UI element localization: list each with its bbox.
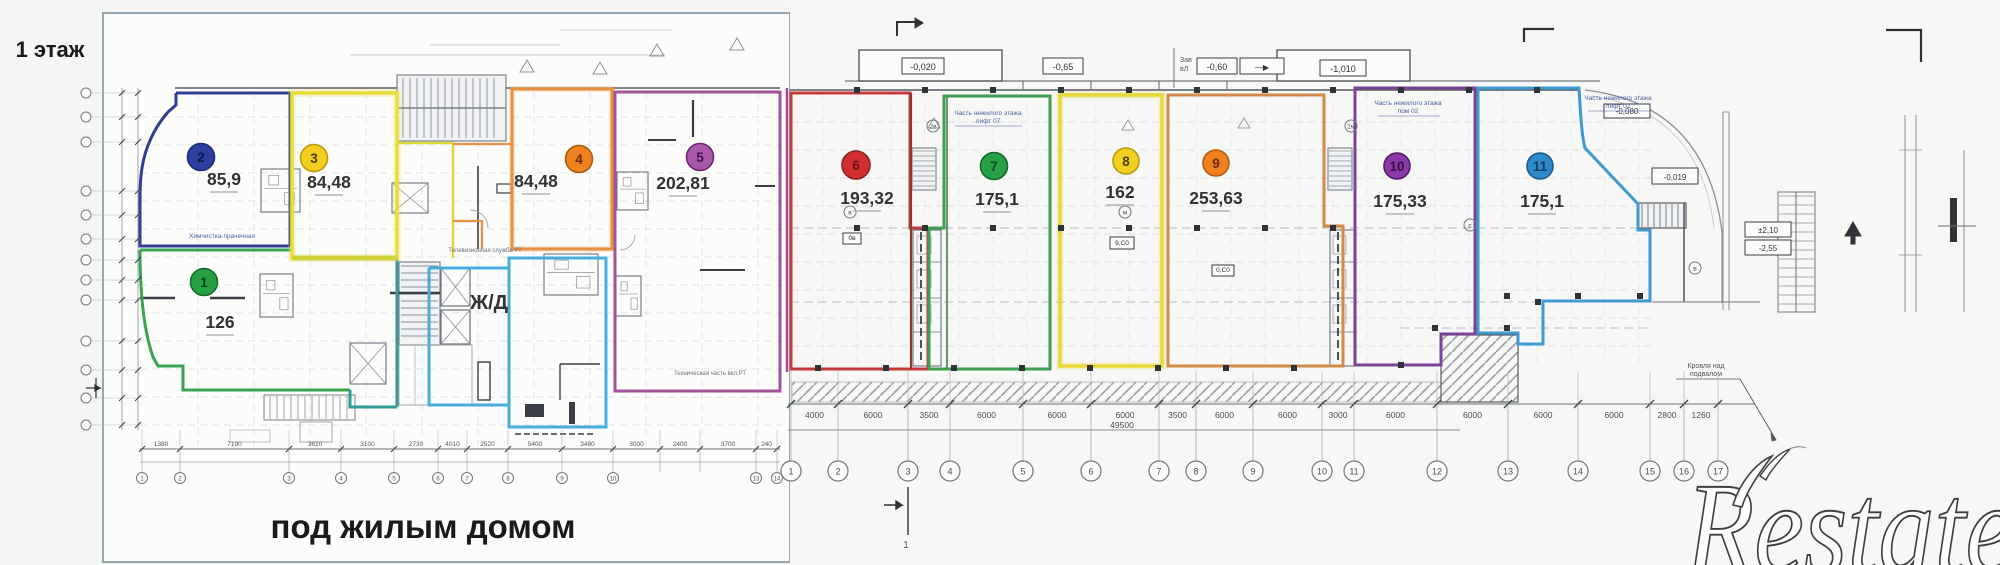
svg-text:6000: 6000 [1215, 410, 1234, 420]
svg-text:пом 02: пом 02 [1398, 108, 1419, 115]
svg-text:3: 3 [905, 467, 910, 477]
svg-text:9,С0: 9,С0 [1115, 240, 1129, 247]
svg-text:2520: 2520 [480, 441, 495, 448]
svg-text:6000: 6000 [1463, 410, 1482, 420]
svg-text:4: 4 [575, 152, 583, 167]
svg-text:202,81: 202,81 [656, 173, 710, 193]
svg-text:2: 2 [835, 467, 840, 477]
svg-text:0в: 0в [848, 235, 856, 242]
svg-text:8: 8 [1193, 467, 1198, 477]
svg-text:6000: 6000 [977, 410, 996, 420]
svg-text:126: 126 [205, 312, 234, 332]
svg-text:14: 14 [774, 477, 781, 483]
svg-text:8: 8 [1122, 154, 1130, 169]
svg-text:3000: 3000 [1329, 410, 1348, 420]
svg-text:6000: 6000 [1605, 410, 1624, 420]
svg-text:4: 4 [947, 467, 952, 477]
svg-text:6000: 6000 [1048, 410, 1067, 420]
svg-text:6000: 6000 [1278, 410, 1297, 420]
svg-text:12: 12 [1432, 467, 1442, 477]
svg-text:3100: 3100 [360, 441, 375, 448]
svg-text:9: 9 [1212, 156, 1220, 171]
svg-text:7: 7 [990, 159, 998, 174]
svg-text:10: 10 [1389, 159, 1404, 174]
svg-text:5400: 5400 [528, 441, 543, 448]
svg-text:-0,020: -0,020 [910, 62, 936, 72]
svg-text:10: 10 [610, 477, 617, 483]
svg-text:Телевизионная служба РТ: Телевизионная служба РТ [448, 248, 522, 254]
svg-text:Часть нежилого этажа: Часть нежилого этажа [1374, 100, 1442, 107]
svg-text:в: в [848, 210, 852, 217]
svg-text:-0,65: -0,65 [1053, 62, 1074, 72]
svg-text:6000: 6000 [1386, 410, 1405, 420]
svg-text:2в: 2в [929, 124, 937, 131]
svg-text:—▶: —▶ [1255, 63, 1270, 72]
svg-text:6: 6 [852, 158, 860, 173]
svg-text:Техническая часть вкл.РТ: Техническая часть вкл.РТ [674, 371, 746, 377]
svg-text:3480: 3480 [580, 441, 595, 448]
svg-text:85,9: 85,9 [207, 169, 241, 189]
svg-text:-0,019: -0,019 [1664, 173, 1687, 182]
svg-text:1: 1 [903, 540, 909, 551]
svg-text:вЛ: вЛ [1180, 66, 1189, 73]
svg-text:3000: 3000 [629, 441, 644, 448]
svg-text:6000: 6000 [864, 410, 883, 420]
svg-text:±2,10: ±2,10 [1758, 226, 1779, 235]
svg-text:84,48: 84,48 [514, 171, 558, 191]
svg-text:193,32: 193,32 [840, 188, 894, 208]
svg-text:7: 7 [1156, 467, 1161, 477]
svg-text:14: 14 [1573, 467, 1583, 477]
svg-text:1 этаж: 1 этаж [16, 37, 85, 62]
svg-text:5: 5 [1020, 467, 1025, 477]
svg-text:Ж/Д: Ж/Д [469, 292, 508, 314]
svg-text:лифт 02: лифт 02 [1606, 103, 1631, 110]
svg-text:4010: 4010 [445, 441, 460, 448]
svg-text:Кровля над: Кровля над [1687, 363, 1724, 370]
svg-text:9: 9 [1250, 467, 1255, 477]
svg-text:2800: 2800 [1658, 410, 1677, 420]
svg-text:подвалом: подвалом [1690, 371, 1722, 378]
svg-text:Зав: Зав [1180, 57, 1192, 64]
svg-text:Restate: Restate [1685, 457, 2000, 565]
svg-text:2400: 2400 [673, 441, 688, 448]
svg-text:10: 10 [1317, 467, 1327, 477]
svg-text:2м: 2м [1347, 124, 1356, 131]
svg-text:13: 13 [753, 477, 760, 483]
svg-text:1: 1 [788, 467, 793, 477]
svg-text:3500: 3500 [920, 410, 939, 420]
svg-text:Часть нежилого этажа: Часть нежилого этажа [1584, 95, 1652, 102]
svg-text:6000: 6000 [1534, 410, 1553, 420]
svg-text:-0,60: -0,60 [1207, 62, 1228, 72]
svg-text:6: 6 [1088, 467, 1093, 477]
svg-text:0,С0: 0,С0 [1216, 267, 1230, 274]
svg-text:3: 3 [310, 151, 318, 166]
svg-text:лифт 07: лифт 07 [976, 118, 1001, 125]
svg-text:3700: 3700 [721, 441, 736, 448]
svg-text:11: 11 [1349, 467, 1358, 477]
svg-text:под жилым домом: под жилым домом [271, 508, 576, 545]
svg-text:5: 5 [696, 150, 704, 165]
svg-text:240: 240 [761, 441, 772, 448]
svg-text:6000: 6000 [1116, 410, 1135, 420]
svg-text:7190: 7190 [227, 441, 242, 448]
svg-text:-1,010: -1,010 [1330, 64, 1356, 74]
svg-text:175,1: 175,1 [1520, 191, 1564, 211]
svg-text:4000: 4000 [805, 410, 824, 420]
svg-text:11: 11 [1533, 159, 1548, 174]
svg-text:49500: 49500 [1110, 420, 1134, 430]
svg-text:162: 162 [1105, 182, 1134, 202]
svg-text:3500: 3500 [1168, 410, 1187, 420]
svg-text:175,33: 175,33 [1373, 191, 1427, 211]
svg-text:Химчистка-прачечная: Химчистка-прачечная [189, 233, 255, 240]
svg-text:Часть нежилого этажа: Часть нежилого этажа [954, 110, 1022, 117]
svg-text:в: в [1693, 266, 1697, 273]
svg-text:84,48: 84,48 [307, 172, 351, 192]
svg-text:1: 1 [200, 275, 208, 290]
svg-text:м: м [1123, 210, 1128, 217]
svg-text:2: 2 [197, 150, 205, 165]
svg-text:175,1: 175,1 [975, 189, 1019, 209]
svg-text:1380: 1380 [154, 441, 169, 448]
svg-text:2730: 2730 [409, 441, 424, 448]
svg-text:253,63: 253,63 [1189, 188, 1243, 208]
svg-text:3610: 3610 [308, 441, 323, 448]
svg-text:15: 15 [1645, 467, 1655, 477]
svg-text:13: 13 [1503, 467, 1513, 477]
svg-text:1260: 1260 [1692, 410, 1711, 420]
svg-text:-2,55: -2,55 [1759, 244, 1778, 253]
